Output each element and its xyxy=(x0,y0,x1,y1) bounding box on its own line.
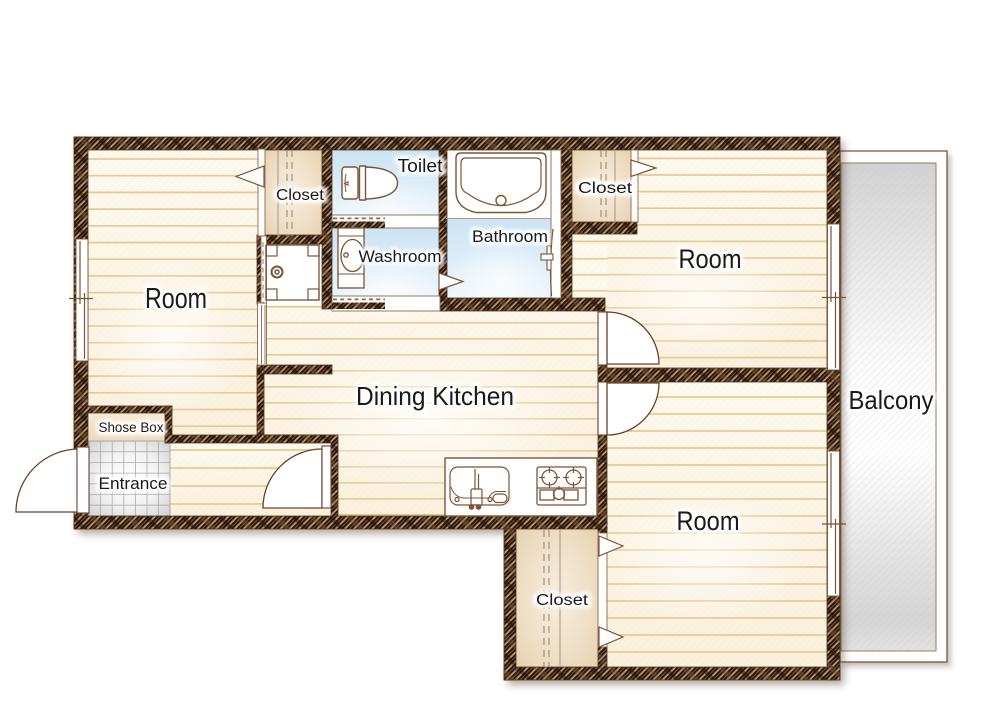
svg-text:Washroom: Washroom xyxy=(359,248,442,266)
svg-text:Closet: Closet xyxy=(276,187,325,204)
svg-text:Closet: Closet xyxy=(536,592,589,609)
svg-text:Room: Room xyxy=(677,506,740,536)
svg-text:Dining Kitchen: Dining Kitchen xyxy=(356,381,514,411)
svg-text:Entrance: Entrance xyxy=(99,474,168,493)
svg-text:Shose Box: Shose Box xyxy=(99,420,164,435)
svg-text:Balcony: Balcony xyxy=(849,385,934,415)
svg-text:Room: Room xyxy=(679,244,742,274)
svg-text:Toilet: Toilet xyxy=(398,156,443,176)
svg-text:Room: Room xyxy=(145,283,207,315)
svg-text:Closet: Closet xyxy=(578,180,633,197)
svg-text:Bathroom: Bathroom xyxy=(472,227,548,246)
